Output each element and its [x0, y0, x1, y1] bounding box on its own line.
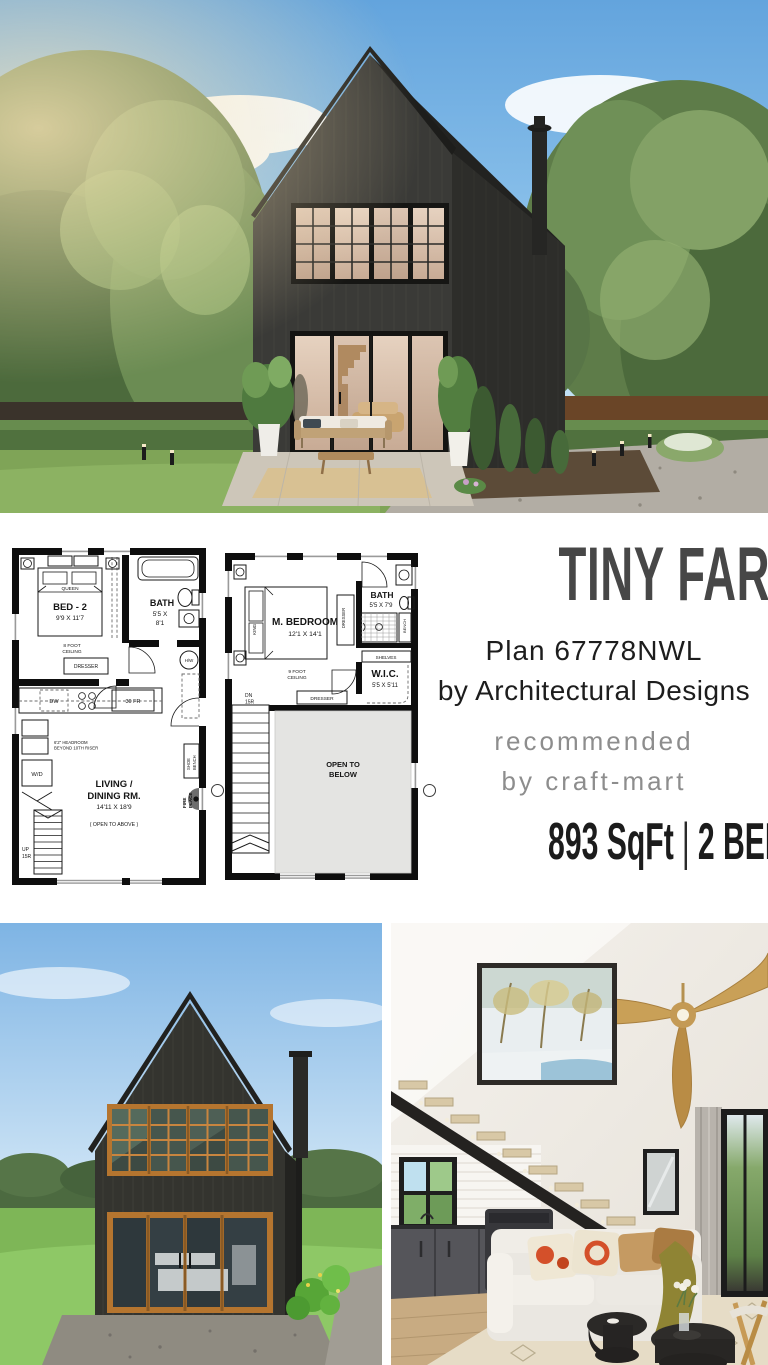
svg-text:SHOE: SHOE	[186, 758, 191, 770]
svg-text:W/D: W/D	[31, 772, 42, 778]
living-label: LIVING /	[96, 779, 133, 790]
wic-label: W.I.C.	[371, 669, 398, 680]
specs-line: 893 SqFt|2 BED 2 BATH	[420, 816, 768, 868]
svg-text:12'1 X 14'1: 12'1 X 14'1	[288, 631, 322, 638]
section-marker-circle	[211, 784, 224, 797]
svg-text:BENCH: BENCH	[402, 619, 407, 633]
headroom-note: 6'2" HEADROOM	[54, 740, 88, 745]
svg-text:DRESSER: DRESSER	[310, 696, 334, 702]
spec-sqft: 893 SqFt	[548, 813, 674, 871]
bed2-label: BED - 2	[53, 602, 87, 613]
pinterest-pin: QUEEN BED - 2 9'9 X 11'7 8 FOOT CEILING …	[0, 0, 768, 1365]
right-window	[721, 1109, 768, 1297]
bed-type-label: KING	[252, 623, 257, 635]
svg-text:5'5 X 5'11: 5'5 X 5'11	[372, 683, 399, 689]
lower-glass-doors-wood	[107, 1212, 273, 1313]
svg-text:DRESSER: DRESSER	[341, 608, 346, 628]
svg-text:( OPEN TO ABOVE ): ( OPEN TO ABOVE )	[90, 822, 139, 828]
info-band: QUEEN BED - 2 9'9 X 11'7 8 FOOT CEILING …	[0, 513, 768, 923]
interior-render-photo	[391, 923, 768, 1365]
headline-column: TINY FARMHOUSE Plan 67778NWL by Architec…	[420, 513, 768, 923]
svg-text:8'1: 8'1	[156, 620, 165, 627]
bed2-dims: 9'9 X 11'7	[56, 615, 84, 622]
ceiling-note: 9 FOOT	[288, 669, 305, 675]
sun-glow	[0, 0, 768, 513]
svg-text:5'5 X: 5'5 X	[153, 611, 168, 618]
exterior-render-photo	[0, 923, 382, 1365]
bed-type-label: QUEEN	[61, 586, 79, 592]
svg-text:DINING RM.: DINING RM.	[87, 791, 140, 802]
left-window	[399, 1157, 457, 1229]
ceiling-note-1: 8 FOOT	[63, 643, 80, 649]
recommended-label: recommended	[420, 726, 768, 757]
svg-text:15R: 15R	[22, 854, 32, 860]
svg-text:5'5 X 7'9: 5'5 X 7'9	[370, 603, 394, 609]
wall-mirror	[643, 1149, 679, 1215]
tray	[673, 1330, 701, 1340]
upper-window-wood	[107, 1104, 273, 1176]
spec-divider: |	[674, 813, 698, 871]
chimney	[293, 1056, 308, 1158]
open-to-below-label: OPEN TO	[326, 760, 360, 769]
svg-text:H/W: H/W	[185, 658, 194, 663]
hero-exterior-photo	[0, 0, 768, 513]
designer-byline: by Architectural Designs	[420, 675, 768, 707]
floor-plan-first-floor: QUEEN BED - 2 9'9 X 11'7 8 FOOT CEILING …	[12, 548, 206, 885]
svg-text:BEYOND 10TH RISER: BEYOND 10TH RISER	[54, 746, 98, 751]
svg-text:CEILING: CEILING	[62, 649, 81, 655]
svg-text:15R: 15R	[245, 700, 255, 706]
stairs-label: DN	[245, 693, 253, 699]
pin-title: TINY FARMHOUSE	[420, 537, 768, 613]
stairs-label: UP	[22, 847, 30, 853]
svg-text:PLACE: PLACE	[188, 792, 193, 808]
svg-text:14'11 X 18'9: 14'11 X 18'9	[96, 804, 132, 811]
svg-text:SHELVES: SHELVES	[376, 655, 397, 660]
svg-text:FIRE: FIRE	[182, 798, 187, 808]
large-table	[651, 1323, 735, 1365]
svg-text:DRESSER: DRESSER	[74, 664, 99, 670]
pillow-orange-2	[571, 1229, 621, 1277]
plan-number: Plan 67778NWL	[420, 635, 768, 667]
spec-rooms: 2 BED 2 BATH	[698, 813, 768, 871]
svg-text:30 FR: 30 FR	[126, 699, 141, 705]
svg-text:BELOW: BELOW	[329, 770, 358, 779]
svg-text:CEILING: CEILING	[287, 675, 306, 681]
master-bedroom-label: M. BEDROOM	[272, 617, 338, 628]
gravel-pad	[42, 1315, 340, 1365]
floor-plan-second-floor: OPEN TO BELOW KING M. BEDROOM 12'1 X 14'…	[225, 553, 418, 880]
cup	[607, 1318, 619, 1323]
bath-label: BATH	[150, 598, 174, 608]
bath-label: BATH	[371, 590, 394, 600]
pillow-orange-1	[527, 1233, 577, 1282]
framed-painting	[477, 963, 617, 1085]
recommended-by: by craft-mart	[420, 766, 768, 797]
open-to-below-area	[275, 711, 411, 873]
svg-text:DW: DW	[49, 699, 59, 705]
svg-text:BENCH: BENCH	[192, 755, 197, 770]
sofa-arm	[487, 1253, 513, 1333]
